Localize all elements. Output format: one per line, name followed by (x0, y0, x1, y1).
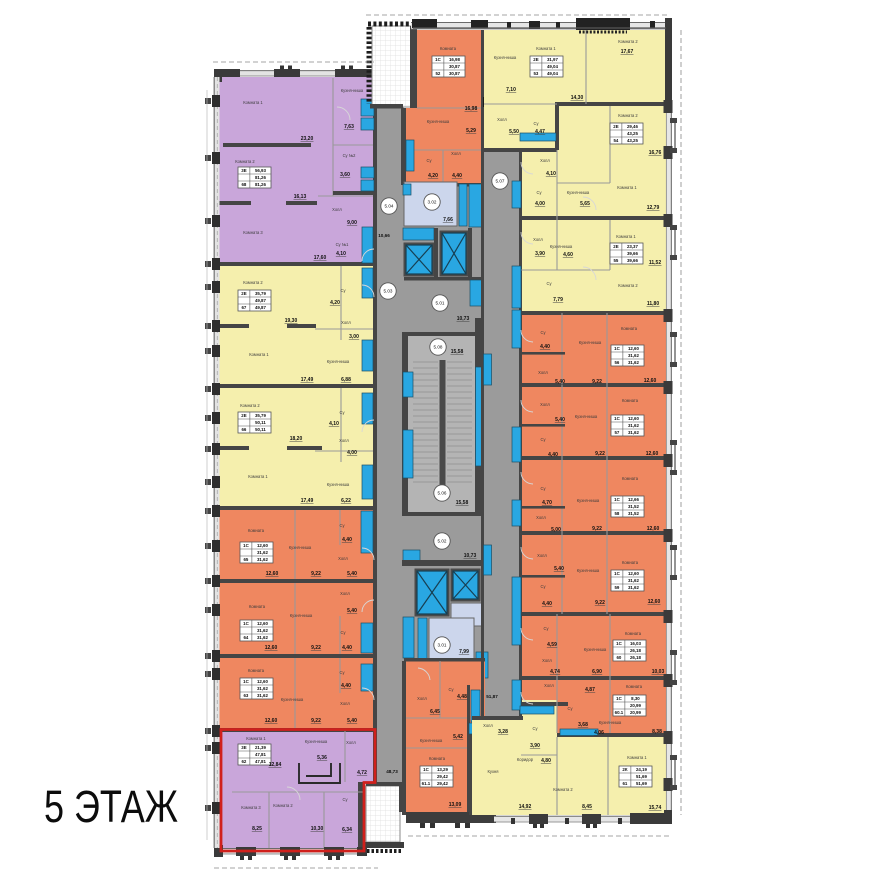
svg-text:Комната 3: Комната 3 (241, 805, 261, 810)
svg-text:16,03: 16,03 (630, 641, 642, 646)
svg-text:1С: 1С (614, 571, 620, 576)
svg-text:55: 55 (613, 258, 618, 263)
svg-text:20,99: 20,99 (630, 710, 642, 715)
svg-text:Холл: Холл (346, 740, 356, 745)
svg-text:31,62: 31,62 (257, 635, 269, 640)
svg-text:Комната 1: Комната 1 (243, 100, 263, 105)
svg-text:Су №2: Су №2 (343, 153, 357, 158)
svg-text:2Е: 2Е (613, 244, 618, 249)
svg-text:21,39: 21,39 (255, 745, 267, 750)
svg-text:51,69: 51,69 (636, 781, 648, 786)
svg-text:Кухня-ниша: Кухня-ниша (584, 647, 607, 652)
svg-text:Комната 2: Комната 2 (273, 803, 293, 808)
svg-text:52: 52 (435, 71, 440, 76)
svg-text:Комната 2: Комната 2 (618, 283, 638, 288)
svg-text:31,52: 31,52 (628, 504, 640, 509)
svg-text:Холл: Холл (338, 556, 348, 561)
svg-text:Кухня-ниша: Кухня-ниша (341, 88, 364, 93)
svg-text:12,60: 12,60 (257, 543, 269, 548)
svg-text:49,87: 49,87 (255, 305, 267, 310)
svg-text:Кухня-ниша: Кухня-ниша (577, 568, 600, 573)
svg-text:Комната 2: Комната 2 (243, 280, 263, 285)
svg-text:49,04: 49,04 (547, 71, 559, 76)
svg-text:Комната: Комната (622, 398, 639, 403)
svg-text:51,69: 51,69 (636, 774, 648, 779)
svg-text:13,29: 13,29 (437, 767, 449, 772)
svg-text:Кухня-ниша: Кухня-ниша (305, 739, 328, 744)
svg-text:12,66: 12,66 (628, 497, 640, 502)
svg-text:65: 65 (243, 557, 248, 562)
svg-text:10,66: 10,66 (378, 233, 390, 238)
svg-text:31,62: 31,62 (257, 557, 269, 562)
svg-text:Холл: Холл (544, 683, 554, 688)
svg-text:48,73: 48,73 (386, 769, 398, 774)
svg-text:43,25: 43,25 (627, 138, 639, 143)
svg-text:3Е: 3Е (241, 168, 246, 173)
svg-text:Комната: Комната (622, 560, 639, 565)
svg-text:Комната 1: Комната 1 (246, 736, 266, 741)
svg-text:Холл: Холл (339, 438, 349, 443)
svg-text:3.02: 3.02 (428, 200, 437, 205)
svg-text:35,79: 35,79 (255, 413, 267, 418)
svg-text:20,99: 20,99 (630, 703, 642, 708)
svg-text:Комната 2: Комната 2 (618, 39, 638, 44)
svg-text:23,37: 23,37 (627, 244, 639, 249)
svg-text:64: 64 (243, 635, 248, 640)
svg-text:Холл: Холл (540, 158, 550, 163)
svg-text:Холл: Холл (341, 320, 351, 325)
svg-text:Су №1: Су №1 (336, 242, 350, 247)
svg-text:35,79: 35,79 (255, 291, 267, 296)
svg-text:29,42: 29,42 (437, 774, 449, 779)
svg-text:2Е: 2Е (241, 413, 246, 418)
svg-text:60.1: 60.1 (615, 710, 624, 715)
svg-text:39,66: 39,66 (627, 258, 639, 263)
svg-text:Комната 2: Комната 2 (240, 403, 260, 408)
svg-text:30,87: 30,87 (449, 64, 461, 69)
svg-text:Кухня-ниша: Кухня-ниша (550, 244, 573, 249)
svg-text:3.01: 3.01 (438, 643, 447, 648)
svg-text:5.08: 5.08 (434, 345, 443, 350)
svg-text:31,62: 31,62 (628, 430, 640, 435)
svg-text:50,11: 50,11 (255, 427, 266, 432)
svg-text:Кухня-ниша: Кухня-ниша (290, 613, 313, 618)
svg-text:12,60: 12,60 (257, 621, 269, 626)
svg-text:Холл: Холл (542, 658, 552, 663)
svg-text:Комната: Комната (249, 604, 266, 609)
svg-text:12,60: 12,60 (628, 571, 640, 576)
svg-text:5.06: 5.06 (438, 491, 447, 496)
svg-text:43,25: 43,25 (627, 131, 639, 136)
svg-text:61.1: 61.1 (422, 781, 431, 786)
svg-text:Кухня-ниша: Кухня-ниша (567, 190, 590, 195)
svg-text:12,60: 12,60 (628, 346, 640, 351)
svg-text:2Е: 2Е (613, 124, 618, 129)
svg-text:Холл: Холл (340, 701, 350, 706)
svg-text:1С: 1С (423, 767, 429, 772)
svg-text:Комната 1: Комната 1 (617, 185, 637, 190)
svg-text:Кухня-ниша: Кухня-ниша (494, 55, 517, 60)
svg-text:Холл: Холл (533, 237, 543, 242)
svg-text:Холл: Холл (451, 151, 461, 156)
svg-text:1С: 1С (614, 346, 620, 351)
svg-text:31,97: 31,97 (547, 57, 559, 62)
svg-text:54: 54 (613, 138, 618, 143)
svg-text:Комната 1: Комната 1 (536, 46, 556, 51)
svg-text:1С: 1С (243, 543, 249, 548)
svg-text:24,19: 24,19 (636, 767, 648, 772)
svg-text:Комната: Комната (429, 756, 446, 761)
svg-text:61: 61 (622, 781, 627, 786)
svg-text:47,81: 47,81 (255, 759, 267, 764)
svg-text:1С: 1С (435, 57, 441, 62)
svg-text:Комната: Комната (248, 528, 265, 533)
svg-text:5.02: 5.02 (438, 539, 447, 544)
svg-text:63: 63 (243, 693, 248, 698)
svg-text:12,60: 12,60 (628, 416, 640, 421)
svg-text:Комната 2: Комната 2 (235, 159, 255, 164)
svg-text:31,62: 31,62 (257, 686, 269, 691)
svg-text:Кухня-ниша: Кухня-ниша (289, 545, 312, 550)
svg-text:Холл: Холл (540, 402, 550, 407)
svg-text:49,87: 49,87 (255, 298, 267, 303)
svg-text:67: 67 (241, 305, 246, 310)
svg-text:2Е: 2Е (533, 57, 538, 62)
svg-text:31,52: 31,52 (628, 511, 640, 516)
svg-text:Комната 1: Комната 1 (627, 755, 647, 760)
svg-text:58: 58 (614, 511, 619, 516)
svg-text:Кухня-ниша: Кухня-ниша (327, 482, 350, 487)
svg-text:Кухня-ниша: Кухня-ниша (281, 697, 304, 702)
svg-text:5.03: 5.03 (384, 289, 393, 294)
svg-text:Кухня-ниша: Кухня-ниша (420, 738, 443, 743)
svg-text:2К: 2К (622, 767, 627, 772)
svg-text:68: 68 (241, 182, 246, 187)
svg-text:59: 59 (614, 585, 619, 590)
svg-text:1С: 1С (243, 621, 249, 626)
svg-text:31,62: 31,62 (257, 628, 269, 633)
svg-text:Комната: Комната (622, 476, 639, 481)
svg-text:31,62: 31,62 (257, 550, 269, 555)
svg-text:Комната: Комната (625, 631, 642, 636)
svg-text:Комната 1: Комната 1 (248, 474, 268, 479)
svg-text:47,81: 47,81 (255, 752, 267, 757)
svg-text:Комната: Комната (440, 46, 457, 51)
svg-text:Кухня-ниша: Кухня-ниша (579, 340, 602, 345)
svg-text:1С: 1С (614, 497, 620, 502)
svg-text:5 ЭТАЖ: 5 ЭТАЖ (44, 781, 178, 832)
svg-text:Холл: Холл (332, 207, 342, 212)
svg-text:Холл: Холл (538, 370, 548, 375)
svg-text:16,98: 16,98 (449, 57, 461, 62)
svg-text:Кухня-ниша: Кухня-ниша (599, 720, 622, 725)
svg-text:Холл: Холл (536, 515, 546, 520)
svg-text:Холл: Холл (497, 117, 507, 122)
svg-text:50,11: 50,11 (255, 420, 266, 425)
svg-text:31,62: 31,62 (628, 353, 640, 358)
svg-text:Комната: Комната (621, 326, 638, 331)
svg-text:53: 53 (533, 71, 538, 76)
svg-text:31,62: 31,62 (628, 423, 640, 428)
svg-text:31,62: 31,62 (628, 585, 640, 590)
svg-text:Комната 1: Комната 1 (249, 352, 269, 357)
svg-text:2Е: 2Е (241, 291, 246, 296)
svg-text:39,66: 39,66 (627, 251, 639, 256)
svg-text:5.07: 5.07 (496, 179, 505, 184)
svg-text:Холл: Холл (537, 553, 547, 558)
svg-text:1С: 1С (616, 696, 622, 701)
svg-text:57: 57 (614, 430, 619, 435)
svg-text:81,26: 81,26 (255, 175, 267, 180)
svg-text:3Е: 3Е (241, 745, 246, 750)
svg-text:Кухня: Кухня (488, 769, 499, 774)
svg-text:56,93: 56,93 (255, 168, 267, 173)
svg-text:Комната 2: Комната 2 (553, 787, 573, 792)
svg-text:29,46: 29,46 (627, 124, 639, 129)
svg-text:1С: 1С (616, 641, 622, 646)
svg-text:Кухня-ниша: Кухня-ниша (427, 119, 450, 124)
svg-text:26,18: 26,18 (630, 655, 642, 660)
svg-text:Холл: Холл (483, 723, 493, 728)
svg-text:Кухня-ниша: Кухня-ниша (575, 414, 598, 419)
svg-text:5.01: 5.01 (436, 301, 445, 306)
svg-text:31,62: 31,62 (257, 693, 269, 698)
svg-text:Холл: Холл (340, 591, 350, 596)
svg-text:56: 56 (614, 360, 619, 365)
svg-text:60: 60 (616, 655, 621, 660)
svg-text:1С: 1С (243, 679, 249, 684)
svg-text:30,87: 30,87 (449, 71, 461, 76)
svg-text:Комната 3: Комната 3 (243, 230, 263, 235)
svg-text:51,87: 51,87 (486, 694, 498, 699)
svg-text:49,04: 49,04 (547, 64, 559, 69)
svg-text:1С: 1С (614, 416, 620, 421)
svg-text:Кухня-ниша: Кухня-ниша (327, 359, 350, 364)
svg-text:5.04: 5.04 (385, 204, 394, 209)
svg-text:26,18: 26,18 (630, 648, 642, 653)
svg-text:8,30: 8,30 (631, 696, 640, 701)
svg-text:Комната 2: Комната 2 (618, 113, 638, 118)
svg-text:62: 62 (241, 759, 246, 764)
svg-text:12,60: 12,60 (257, 679, 269, 684)
svg-text:Кухня-ниша: Кухня-ниша (577, 498, 600, 503)
svg-text:66: 66 (241, 427, 246, 432)
svg-text:Комната: Комната (248, 668, 265, 673)
svg-text:Коридор: Коридор (517, 757, 534, 762)
svg-text:Холл: Холл (417, 696, 427, 701)
svg-text:31,62: 31,62 (628, 578, 640, 583)
svg-text:81,26: 81,26 (255, 182, 267, 187)
svg-text:29,42: 29,42 (437, 781, 449, 786)
svg-text:31,62: 31,62 (628, 360, 640, 365)
svg-text:Комната: Комната (626, 684, 643, 689)
svg-text:Комната 1: Комната 1 (616, 234, 636, 239)
